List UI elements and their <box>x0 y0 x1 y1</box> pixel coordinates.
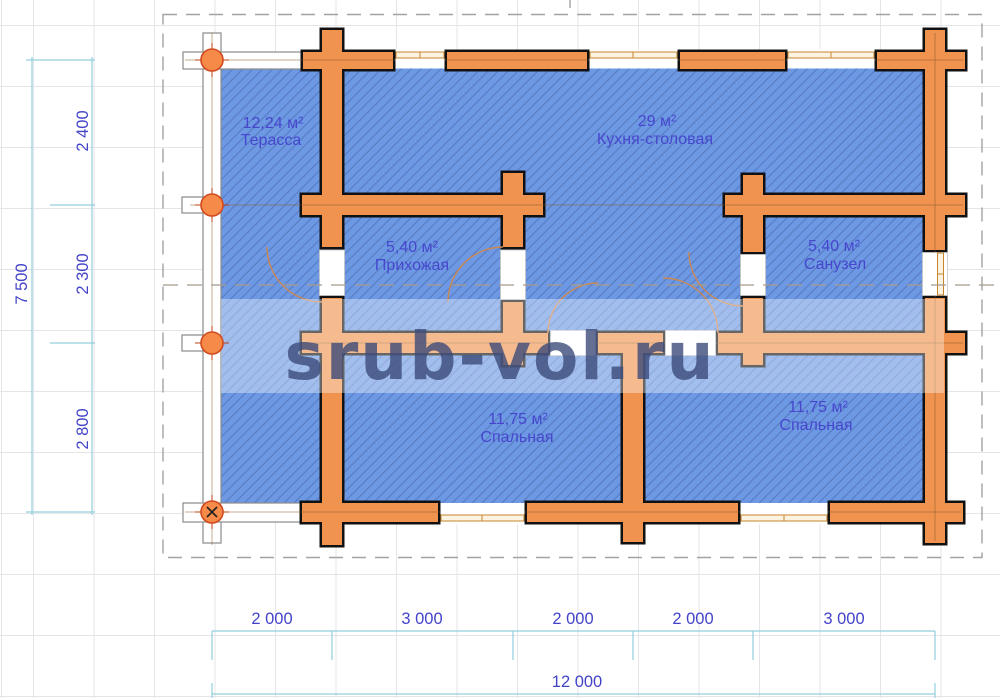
room-name: Кухня-столовая <box>597 131 713 148</box>
dim-bottom-segment-1: 3 000 <box>401 610 442 628</box>
room-label-bathroom: 5,40 м² Санузел <box>804 238 866 273</box>
dim-left-segment-0: 2 400 <box>74 110 92 151</box>
room-area: 5,40 м² <box>386 239 439 256</box>
room-area: 11,75 м² <box>488 411 548 428</box>
dim-left-total: 7 500 <box>13 263 31 304</box>
dim-left-segment-1: 2 300 <box>74 253 92 294</box>
room-label-terrace: 12,24 м² Терасса <box>241 115 304 149</box>
room-name: Санузел <box>804 256 866 273</box>
room-area: 5,40 м² <box>808 238 861 255</box>
floor-plan-canvas: srub-vol.ru 2 400 2 300 2 80 <box>0 0 1000 698</box>
room-label-bedroom-right: 11,75 м² Спальная <box>779 399 852 434</box>
dimensions-bottom: 2 000 3 000 2 000 2 000 3 000 12 000 <box>212 610 935 698</box>
room-name: Терасса <box>241 132 302 149</box>
room-name: Прихожая <box>375 257 449 274</box>
dim-bottom-segment-3: 2 000 <box>672 610 713 628</box>
room-name: Спальная <box>779 417 852 434</box>
dimensions-left: 2 400 2 300 2 800 7 500 <box>13 57 95 515</box>
room-area: 12,24 м² <box>243 115 304 132</box>
room-area: 11,75 м² <box>788 399 848 416</box>
dim-bottom-total: 12 000 <box>552 673 602 691</box>
watermark: srub-vol.ru <box>221 299 944 395</box>
floor-plan: srub-vol.ru 2 400 2 300 2 80 <box>0 0 1000 698</box>
room-area: 29 м² <box>638 113 677 130</box>
dim-bottom-segment-2: 2 000 <box>552 610 593 628</box>
dim-bottom-segment-4: 3 000 <box>823 610 864 628</box>
dim-bottom-segment-0: 2 000 <box>251 610 292 628</box>
watermark-text: srub-vol.ru <box>284 318 715 395</box>
room-name: Спальная <box>480 429 553 446</box>
room-label-hallway: 5,40 м² Прихожая <box>375 239 449 274</box>
room-label-bedroom-left: 11,75 м² Спальная <box>480 411 553 446</box>
dim-left-segment-2: 2 800 <box>74 408 92 449</box>
